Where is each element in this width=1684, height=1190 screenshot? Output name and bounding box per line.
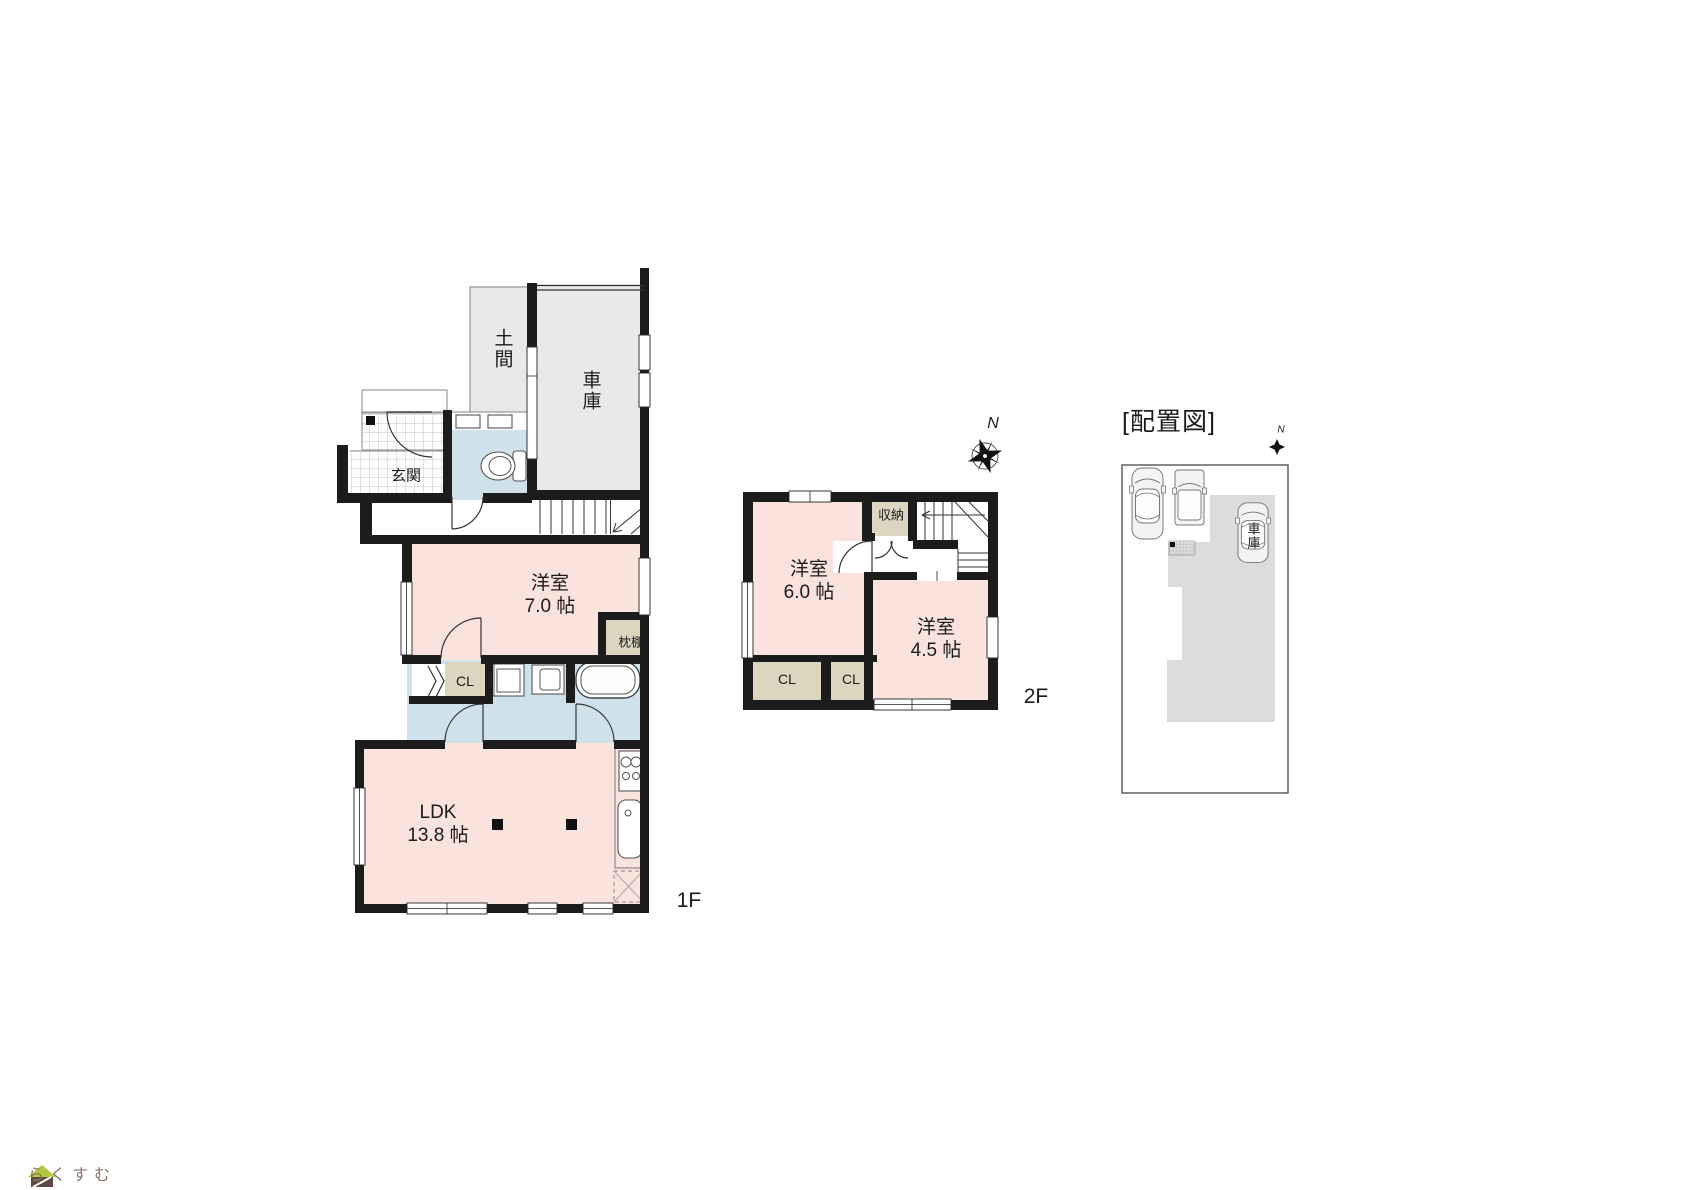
site-compass-n-label: N — [1277, 425, 1284, 436]
hall-patch — [412, 664, 445, 700]
closet-2f-right-label: CL — [842, 671, 860, 687]
garage-label: 車庫 — [577, 370, 604, 412]
stairwell-2f — [917, 502, 992, 572]
floor-plan-2f — [742, 433, 1008, 710]
ldk-label: LDK 13.8 帖 — [407, 801, 468, 847]
genkan-label: 玄関 — [391, 465, 421, 486]
site-plan — [1122, 439, 1288, 793]
hall-2f — [833, 541, 917, 573]
car-icon — [1130, 468, 1166, 539]
washer-icon — [490, 664, 524, 696]
bathtub-icon — [576, 662, 640, 698]
site-garage-label: 車庫 — [1244, 522, 1263, 550]
closet-1f-label: CL — [456, 673, 474, 689]
van-icon — [1173, 470, 1207, 525]
compass-rose-icon — [962, 433, 1007, 478]
mini-compass-icon — [1269, 439, 1285, 455]
western-room-7-label: 洋室 7.0 帖 — [525, 572, 576, 618]
doma-label: 土間 — [489, 328, 516, 370]
closet-2f-left-label: CL — [778, 671, 796, 687]
pillar — [492, 819, 503, 830]
vanity-icon — [532, 665, 564, 694]
western-room-6-label: 洋室 6.0 帖 — [784, 558, 835, 604]
stove-icon — [619, 751, 642, 791]
toilet-icon — [481, 451, 526, 481]
sink-icon — [618, 800, 642, 858]
compass-n-label: N — [987, 415, 999, 433]
logo: らくすむ — [28, 1161, 116, 1185]
site-porch-post — [1170, 542, 1175, 547]
kitchen-counter — [615, 748, 642, 868]
toilet-door-arc — [452, 497, 483, 529]
pillar — [566, 819, 577, 830]
logo-text: らくすむ — [28, 1161, 116, 1185]
site-plan-title: [配置図] — [1122, 402, 1216, 438]
floor1-label: 1F — [677, 889, 702, 913]
western-room-45-label: 洋室 4.5 帖 — [911, 616, 962, 662]
porch-post — [366, 416, 375, 425]
porch-step — [362, 390, 447, 413]
floorplan-page: 土間 車庫 玄関 洋室 7.0 帖 枕棚 CL LDK 13.8 帖 1F 洋室… — [0, 0, 1684, 1190]
stairs-1f — [540, 500, 648, 534]
floor2-label: 2F — [1024, 685, 1049, 709]
storage-label: 収納 — [878, 505, 904, 524]
pillow-shelf-label: 枕棚 — [618, 632, 643, 651]
floorplan-drawing — [0, 0, 1684, 1190]
